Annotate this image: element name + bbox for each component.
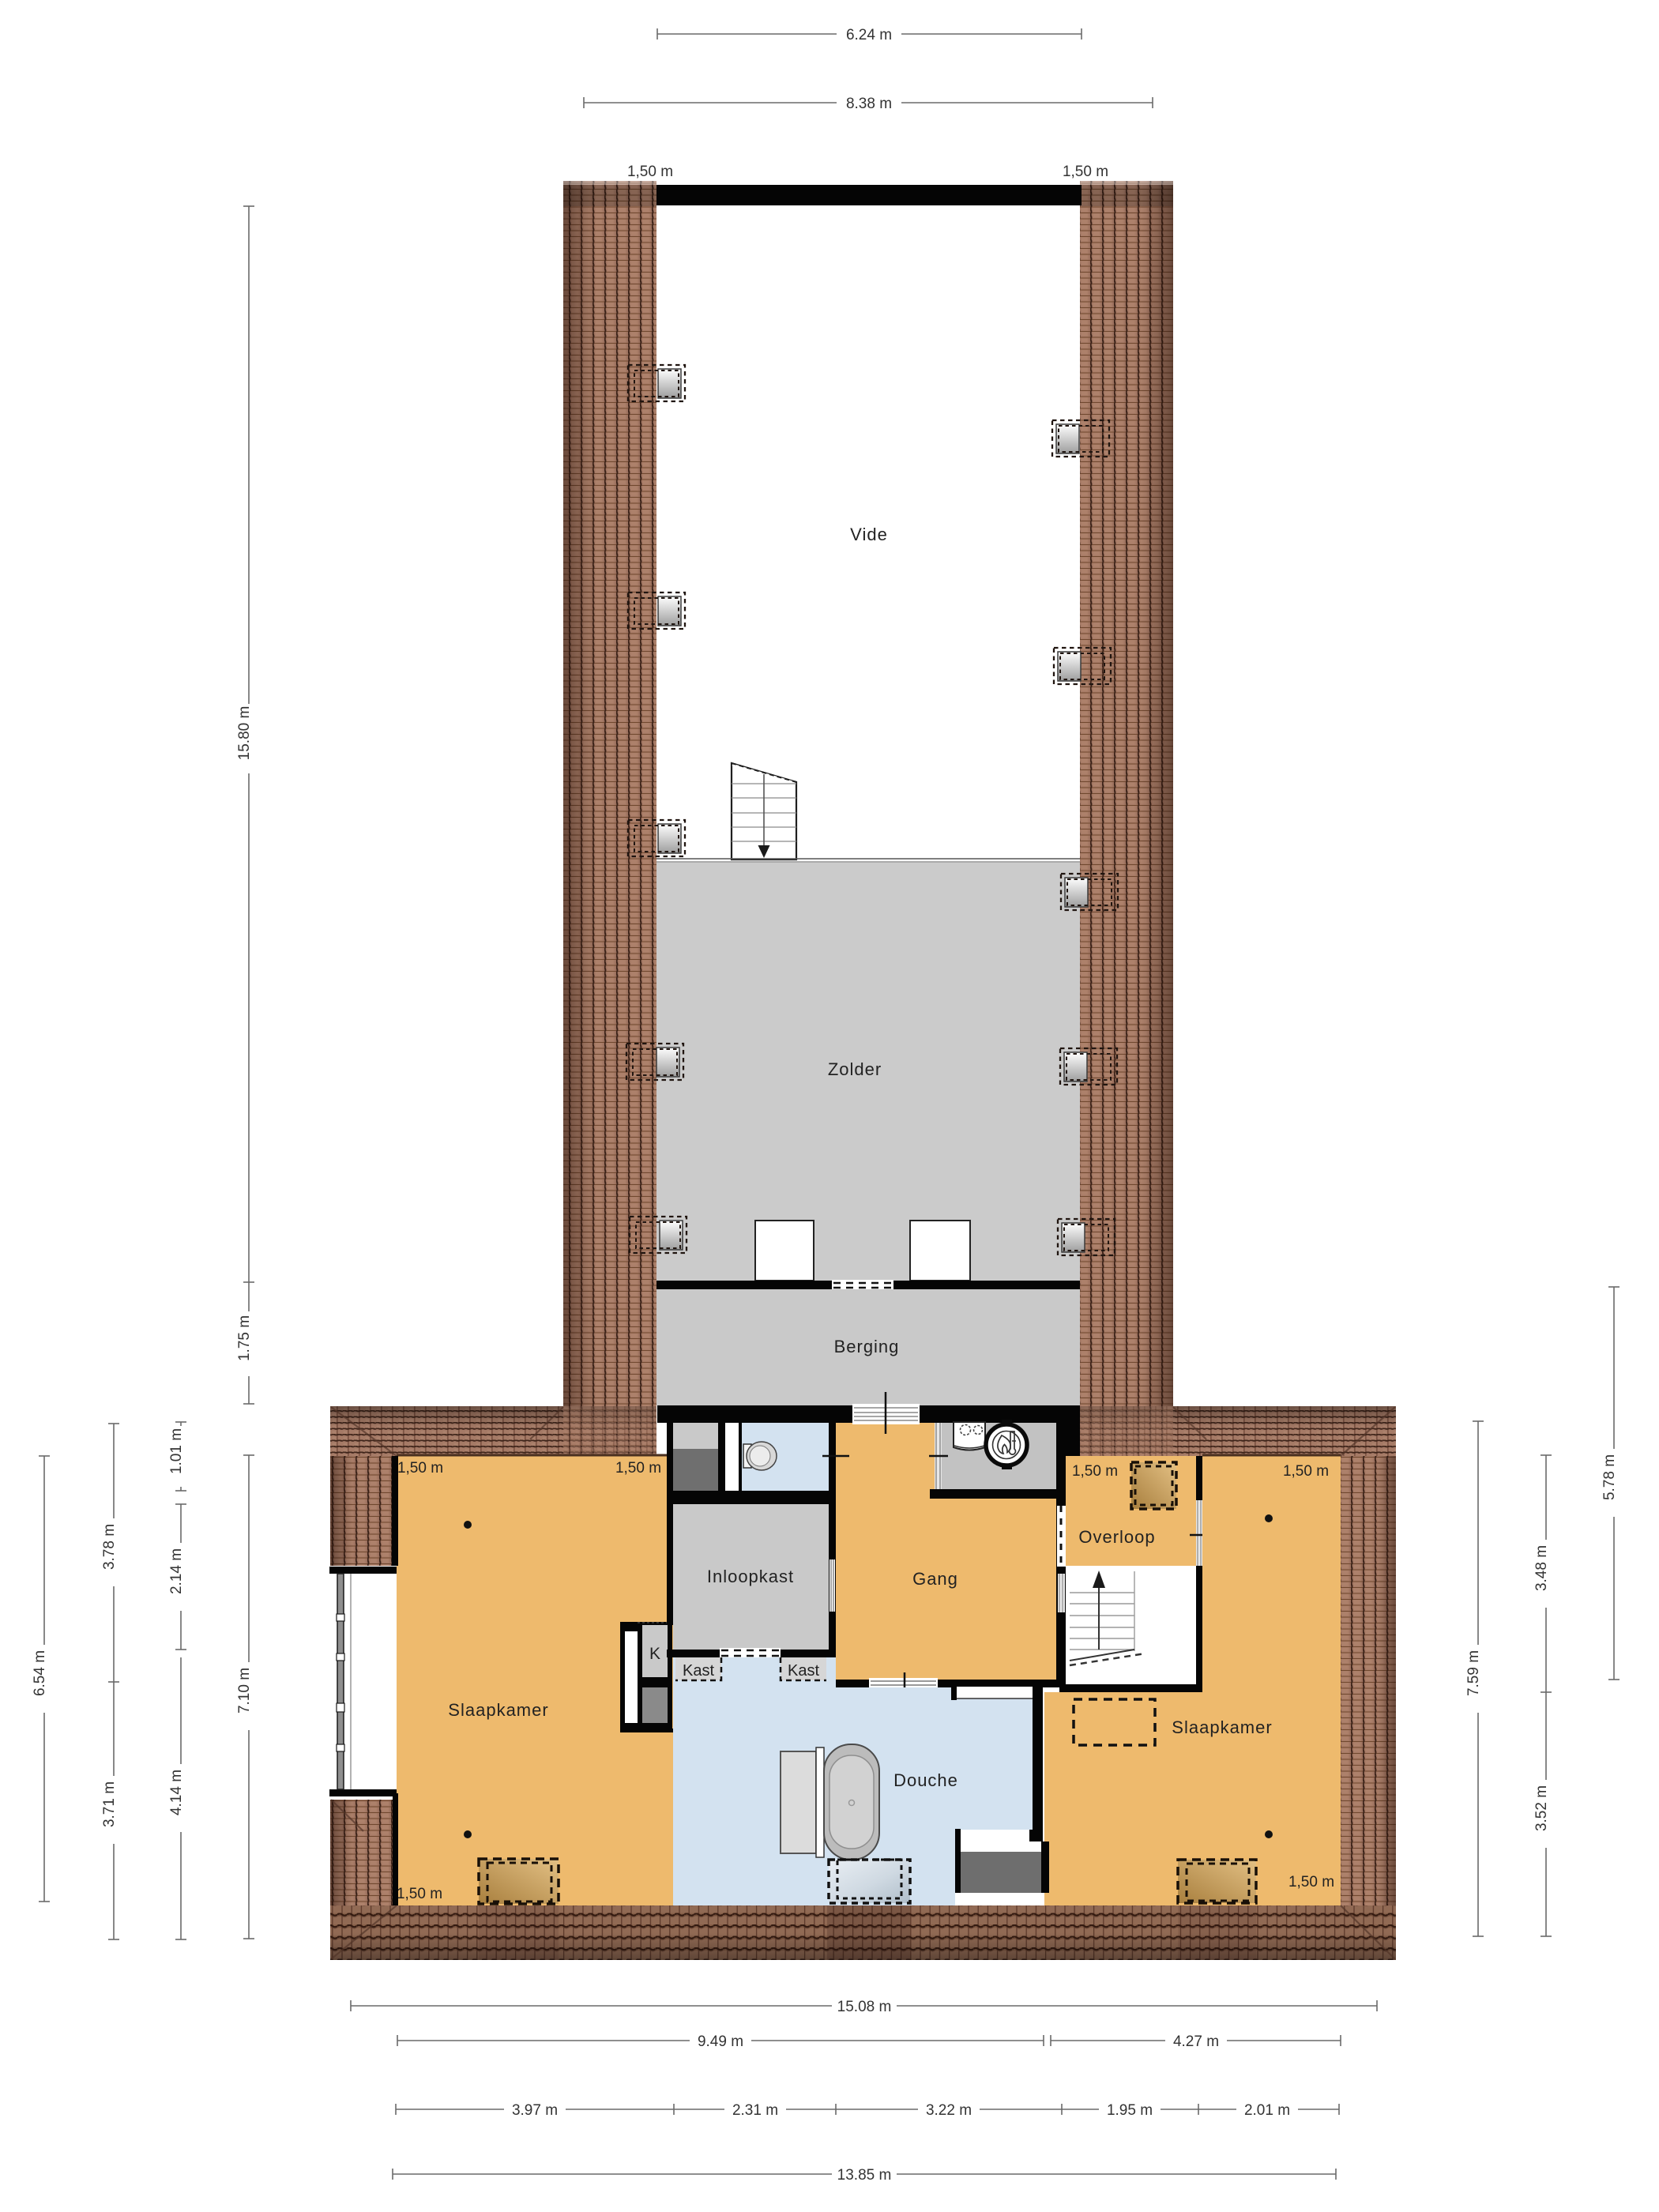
svg-text:Slaapkamer: Slaapkamer	[448, 1700, 548, 1720]
svg-text:13.85 m: 13.85 m	[837, 2167, 892, 2184]
svg-text:2.14 m: 2.14 m	[168, 1548, 185, 1594]
svg-text:4.27 m: 4.27 m	[1173, 2033, 1219, 2050]
svg-text:Vide: Vide	[850, 525, 888, 544]
svg-text:Kast: Kast	[683, 1662, 714, 1680]
svg-text:3.97 m: 3.97 m	[512, 2102, 558, 2119]
svg-text:Kast: Kast	[788, 1662, 819, 1680]
svg-text:Berging: Berging	[834, 1337, 900, 1356]
svg-text:4.14 m: 4.14 m	[168, 1770, 185, 1815]
svg-text:2.31 m: 2.31 m	[732, 2102, 778, 2119]
svg-text:3.22 m: 3.22 m	[926, 2102, 972, 2119]
svg-text:1,50 m: 1,50 m	[1283, 1463, 1329, 1480]
svg-text:1.95 m: 1.95 m	[1107, 2102, 1153, 2119]
svg-text:3.78 m: 3.78 m	[101, 1524, 118, 1570]
svg-text:3.48 m: 3.48 m	[1533, 1545, 1550, 1591]
svg-text:1,50 m: 1,50 m	[397, 1886, 442, 1902]
svg-text:8.38 m: 8.38 m	[846, 96, 892, 112]
svg-text:15.08 m: 15.08 m	[837, 1999, 892, 2015]
svg-text:1.75 m: 1.75 m	[236, 1315, 253, 1361]
svg-text:Slaapkamer: Slaapkamer	[1172, 1717, 1272, 1737]
svg-text:1,50 m: 1,50 m	[397, 1460, 443, 1477]
svg-text:7.59 m: 7.59 m	[1465, 1650, 1482, 1696]
svg-text:1,50 m: 1,50 m	[1288, 1874, 1334, 1890]
svg-text:Zolder: Zolder	[828, 1059, 882, 1079]
svg-text:Gang: Gang	[912, 1569, 958, 1589]
svg-text:7.10 m: 7.10 m	[236, 1668, 253, 1714]
svg-text:Overloop: Overloop	[1078, 1527, 1155, 1547]
svg-text:3.52 m: 3.52 m	[1533, 1785, 1550, 1831]
svg-text:K: K	[649, 1645, 660, 1663]
svg-text:1,50 m: 1,50 m	[1072, 1463, 1118, 1480]
svg-text:5.78 m: 5.78 m	[1601, 1454, 1618, 1500]
svg-text:1,50 m: 1,50 m	[627, 164, 673, 180]
svg-text:Douche: Douche	[893, 1770, 958, 1790]
svg-text:1,50 m: 1,50 m	[615, 1460, 661, 1477]
svg-text:6.54 m: 6.54 m	[32, 1650, 48, 1696]
svg-text:2.01 m: 2.01 m	[1244, 2102, 1290, 2119]
svg-text:15.80 m: 15.80 m	[236, 706, 253, 761]
svg-text:Inloopkast: Inloopkast	[707, 1567, 794, 1586]
svg-text:1.01 m: 1.01 m	[168, 1428, 185, 1474]
svg-text:9.49 m: 9.49 m	[698, 2033, 743, 2050]
svg-text:1,50 m: 1,50 m	[1063, 164, 1108, 180]
svg-text:3.71 m: 3.71 m	[101, 1781, 118, 1827]
svg-text:6.24 m: 6.24 m	[846, 27, 892, 43]
